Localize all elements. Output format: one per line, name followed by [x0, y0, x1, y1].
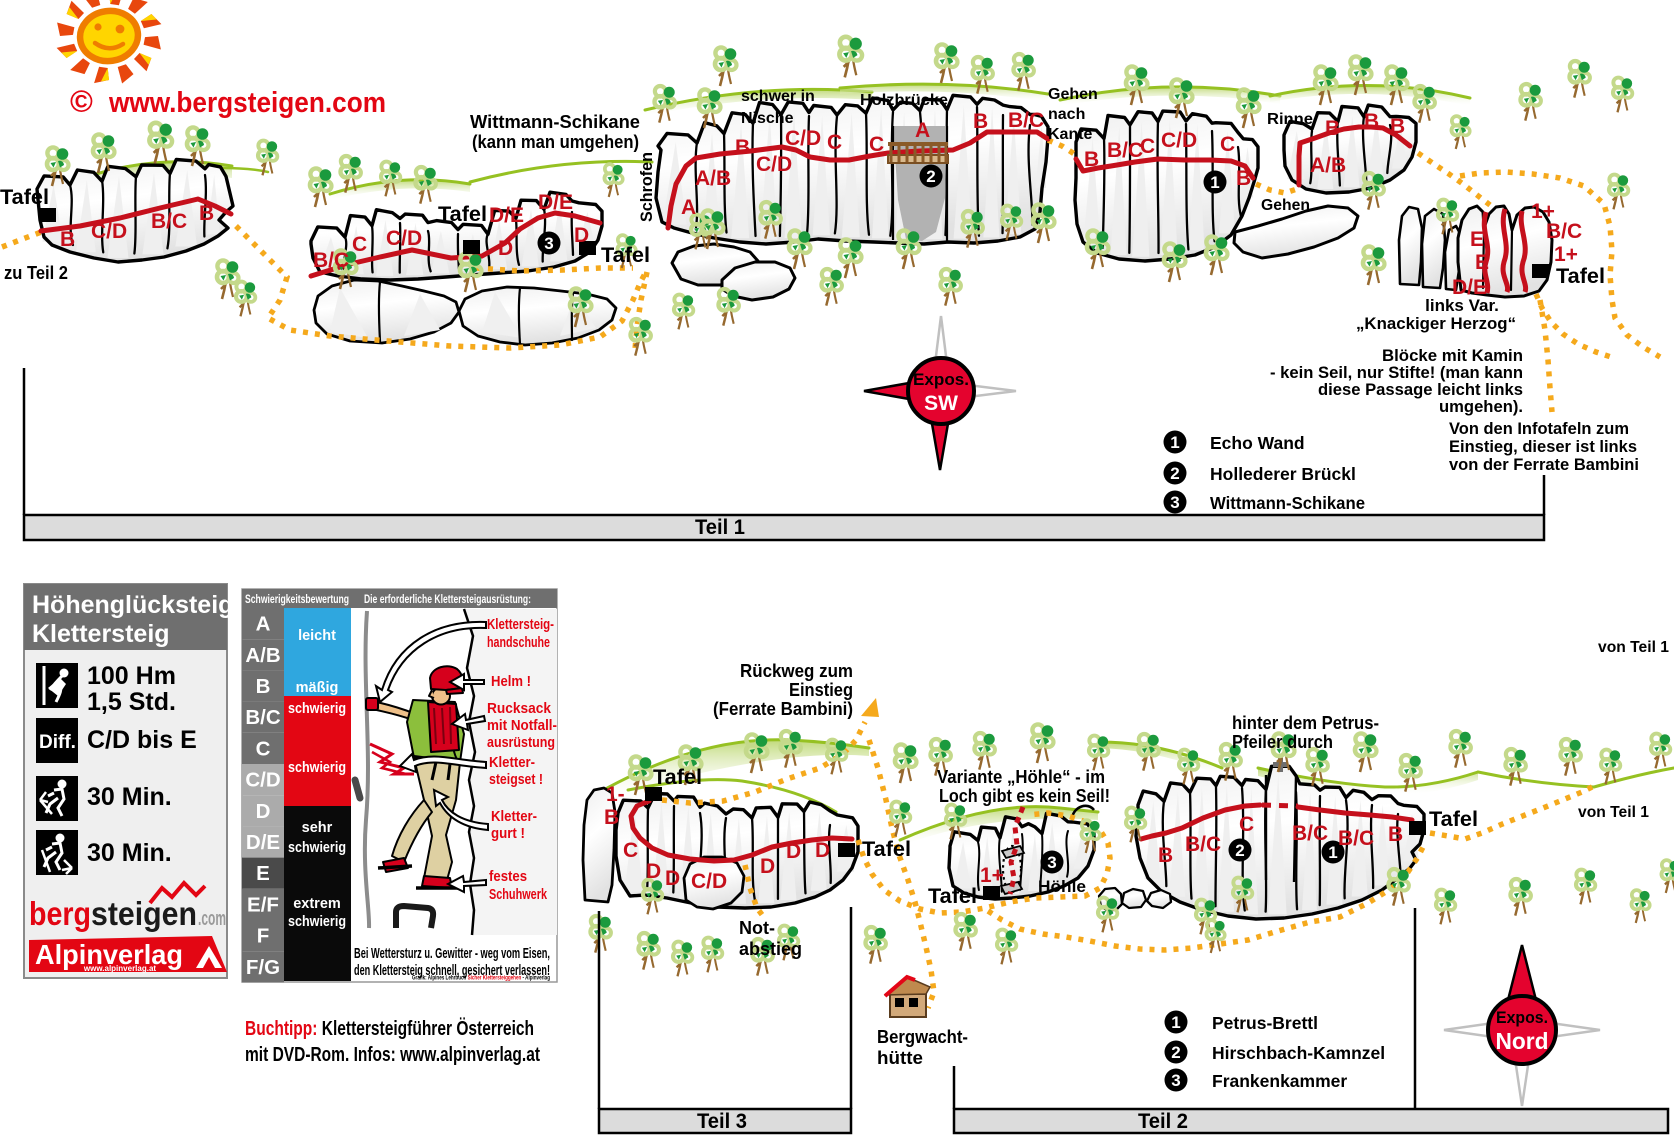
- svg-text:Tafel: Tafel: [438, 203, 487, 226]
- svg-text:Tafel: Tafel: [653, 766, 702, 789]
- svg-text:von Teil 1: von Teil 1: [1578, 804, 1649, 821]
- svg-text:Schrofen: Schrofen: [637, 152, 656, 222]
- svg-text:3: 3: [1171, 1071, 1180, 1090]
- svg-text:1+: 1+: [1554, 243, 1578, 266]
- svg-text:D: D: [786, 840, 801, 863]
- svg-text:B: B: [256, 675, 271, 698]
- svg-text:C: C: [352, 233, 367, 256]
- svg-text:www.alpinverlag.at: www.alpinverlag.at: [83, 964, 157, 973]
- svg-text:A/B: A/B: [1310, 154, 1346, 177]
- svg-text:A: A: [256, 613, 271, 636]
- svg-text:von Teil 1: von Teil 1: [1598, 639, 1669, 656]
- svg-text:B: B: [604, 806, 619, 829]
- svg-text:B: B: [1388, 823, 1403, 846]
- svg-text:steigen: steigen: [91, 895, 197, 932]
- svg-text:B/C: B/C: [1546, 220, 1582, 243]
- svg-text:nach: nach: [1048, 106, 1085, 123]
- svg-text:mit Notfall-: mit Notfall-: [487, 717, 557, 734]
- svg-text:Rucksack: Rucksack: [487, 700, 552, 717]
- svg-text:Kante: Kante: [1048, 126, 1093, 143]
- svg-text:Tafel: Tafel: [601, 244, 650, 267]
- svg-text:(Ferrate Bambini): (Ferrate Bambini): [713, 699, 853, 719]
- svg-text:B: B: [1084, 148, 1099, 171]
- svg-text:B: B: [1325, 117, 1340, 140]
- svg-text:2: 2: [1170, 464, 1179, 483]
- svg-text:1+: 1+: [980, 864, 1004, 887]
- svg-text:F: F: [257, 925, 270, 948]
- svg-text:umgehen).: umgehen).: [1439, 397, 1523, 416]
- svg-text:1: 1: [1171, 1013, 1180, 1032]
- svg-text:C/D: C/D: [785, 127, 821, 150]
- svg-text:E: E: [256, 862, 270, 885]
- svg-text:Schuhwerk: Schuhwerk: [489, 886, 547, 903]
- svg-text:D: D: [498, 237, 513, 260]
- svg-text:steigset !: steigset !: [489, 771, 543, 788]
- svg-text:Variante „Höhle“ - im: Variante „Höhle“ - im: [937, 767, 1105, 787]
- svg-text:Pfeiler durch: Pfeiler durch: [1232, 732, 1333, 752]
- svg-text:B/C: B/C: [151, 210, 187, 233]
- svg-text:Bei Wettersturz u. Gewitter -: Bei Wettersturz u. Gewitter - weg vom Ei…: [354, 945, 550, 962]
- svg-text:Wittmann-Schikane: Wittmann-Schikane: [470, 112, 640, 132]
- svg-text:mäßig: mäßig: [296, 680, 339, 696]
- svg-text:100 Hm: 100 Hm: [87, 662, 176, 690]
- svg-text:1: 1: [1328, 843, 1337, 862]
- svg-text:F/G: F/G: [246, 956, 280, 979]
- svg-text:Nord: Nord: [1496, 1028, 1549, 1054]
- svg-text:schwer in: schwer in: [741, 88, 815, 105]
- svg-text:Teil 3: Teil 3: [697, 1110, 747, 1133]
- svg-text:D/E: D/E: [489, 204, 524, 227]
- svg-text:1,5 Std.: 1,5 Std.: [87, 688, 176, 716]
- svg-text:Holzbrücke: Holzbrücke: [860, 92, 948, 109]
- svg-text:Buchtipp: Klettersteigführer Ö: Buchtipp: Klettersteigführer Österreich: [245, 1017, 534, 1040]
- svg-text:C/D: C/D: [245, 769, 280, 792]
- svg-text:B/C: B/C: [1292, 822, 1328, 845]
- svg-text:A: A: [681, 196, 696, 219]
- svg-text:sehr: sehr: [302, 820, 333, 836]
- svg-text:C: C: [1239, 813, 1254, 836]
- svg-text:Not-: Not-: [739, 918, 775, 938]
- svg-text:D: D: [665, 867, 680, 890]
- svg-text:3: 3: [1170, 493, 1179, 512]
- svg-text:D: D: [760, 855, 775, 878]
- svg-text:Gehen: Gehen: [1261, 197, 1310, 214]
- svg-text:Tafel: Tafel: [0, 186, 49, 209]
- svg-text:Klettersteig-: Klettersteig-: [487, 616, 554, 633]
- svg-text:B/C: B/C: [1185, 833, 1221, 856]
- svg-text:Kletter-: Kletter-: [491, 808, 537, 825]
- svg-text:1: 1: [1170, 433, 1179, 452]
- svg-text:Teil 2: Teil 2: [1138, 1110, 1188, 1133]
- svg-text:Die erforderliche Klettersteig: Die erforderliche Klettersteigausrüstung…: [364, 592, 531, 606]
- svg-text:2: 2: [1235, 841, 1244, 860]
- svg-text:B: B: [1364, 110, 1379, 133]
- svg-text:2: 2: [1171, 1043, 1180, 1062]
- svg-text:Diff.: Diff.: [39, 732, 76, 753]
- svg-text:Tafel: Tafel: [1556, 265, 1605, 288]
- svg-text:gurt !: gurt !: [491, 825, 525, 842]
- svg-text:hütte: hütte: [877, 1048, 923, 1068]
- svg-text:B: B: [199, 202, 214, 225]
- svg-text:leicht: leicht: [298, 628, 336, 644]
- svg-text:Nische: Nische: [741, 110, 794, 127]
- svg-text:Teil 1: Teil 1: [695, 516, 745, 539]
- svg-text:ausrüstung: ausrüstung: [487, 734, 555, 751]
- svg-text:C/D: C/D: [756, 153, 792, 176]
- svg-text:Hollederer Brückl: Hollederer Brückl: [1210, 464, 1356, 484]
- svg-text:www.bergsteigen.com: www.bergsteigen.com: [108, 87, 386, 119]
- svg-text:C/D: C/D: [386, 227, 422, 250]
- svg-text:Rückweg zum: Rückweg zum: [740, 661, 853, 681]
- svg-text:C: C: [256, 737, 271, 760]
- svg-text:Bergwacht-: Bergwacht-: [877, 1027, 968, 1047]
- svg-text:D: D: [815, 839, 830, 862]
- svg-text:handschuhe: handschuhe: [487, 634, 550, 651]
- svg-text:B/C: B/C: [1008, 109, 1044, 132]
- svg-text:Klettersteig: Klettersteig: [32, 620, 170, 648]
- svg-text:Frankenkammer: Frankenkammer: [1212, 1071, 1347, 1091]
- svg-text:30 Min.: 30 Min.: [87, 783, 172, 811]
- svg-text:SW: SW: [924, 392, 958, 415]
- svg-text:A: A: [915, 119, 930, 142]
- svg-text:D/E: D/E: [246, 831, 280, 854]
- svg-text:C/D: C/D: [91, 220, 127, 243]
- svg-text:B: B: [1158, 844, 1173, 867]
- svg-text:Von den Infotafeln zum: Von den Infotafeln zum: [1449, 419, 1629, 438]
- svg-text:Grafik: Alpines Lehrbuch Siche: Grafik: Alpines Lehrbuch Sicher Kletters…: [412, 975, 550, 982]
- svg-text:links Var.: links Var.: [1425, 296, 1499, 315]
- svg-text:Höhle: Höhle: [1038, 877, 1086, 896]
- svg-text:C: C: [827, 131, 842, 154]
- svg-text:Wittmann-Schikane: Wittmann-Schikane: [1210, 493, 1365, 513]
- svg-text:D: D: [574, 224, 589, 247]
- svg-text:schwierig: schwierig: [288, 840, 346, 856]
- svg-text:B: B: [973, 110, 988, 133]
- svg-text:C: C: [623, 839, 638, 862]
- svg-text:B/C: B/C: [313, 249, 349, 272]
- svg-text:B: B: [1236, 167, 1251, 190]
- svg-text:mit DVD-Rom. Infos: www.alpinv: mit DVD-Rom. Infos: www.alpinverlag.at: [245, 1044, 540, 1066]
- svg-text:Tafel: Tafel: [928, 885, 977, 908]
- svg-text:A/B: A/B: [695, 167, 731, 190]
- svg-text:2: 2: [926, 167, 935, 186]
- svg-text:„Knackiger Herzog“: „Knackiger Herzog“: [1356, 314, 1516, 333]
- svg-text:Einstieg: Einstieg: [789, 680, 853, 700]
- svg-text:Helm !: Helm !: [491, 673, 531, 690]
- svg-text:D/E: D/E: [538, 191, 573, 214]
- svg-text:Rinne: Rinne: [1267, 111, 1313, 128]
- svg-text:Loch gibt es kein Seil!: Loch gibt es kein Seil!: [939, 786, 1110, 806]
- svg-text:abstieg: abstieg: [739, 939, 802, 959]
- svg-text:B/C: B/C: [245, 706, 281, 729]
- svg-text:1-: 1-: [606, 783, 625, 806]
- svg-text:B/C: B/C: [1338, 827, 1374, 850]
- svg-text:C/D: C/D: [691, 870, 727, 893]
- svg-text:.com: .com: [198, 908, 226, 930]
- svg-text:Echo Wand: Echo Wand: [1210, 433, 1305, 453]
- svg-text:zu Teil 2: zu Teil 2: [4, 263, 68, 283]
- svg-text:(kann man umgehen): (kann man umgehen): [472, 132, 639, 152]
- svg-text:A/B: A/B: [245, 644, 280, 667]
- svg-text:Kletter-: Kletter-: [489, 754, 535, 771]
- svg-text:C: C: [1140, 135, 1155, 158]
- svg-text:B: B: [735, 136, 750, 159]
- svg-text:festes: festes: [489, 868, 527, 885]
- svg-text:E: E: [1470, 228, 1484, 251]
- svg-text:berg: berg: [29, 895, 91, 932]
- svg-text:Gehen: Gehen: [1048, 86, 1098, 103]
- svg-text:Schwierigkeitsbewertung: Schwierigkeitsbewertung: [245, 592, 349, 606]
- svg-text:E: E: [1475, 251, 1489, 274]
- svg-text:Hirschbach-Kamnzel: Hirschbach-Kamnzel: [1212, 1043, 1385, 1063]
- svg-text:3: 3: [544, 234, 553, 253]
- svg-text:3: 3: [1047, 853, 1056, 872]
- svg-text:Expos.: Expos.: [913, 370, 969, 389]
- svg-text:C: C: [1220, 133, 1235, 156]
- svg-text:schwierig: schwierig: [288, 914, 346, 930]
- svg-text:B: B: [60, 228, 75, 251]
- svg-text:30 Min.: 30 Min.: [87, 839, 172, 867]
- svg-text:Expos.: Expos.: [1496, 1008, 1548, 1027]
- svg-text:1: 1: [1210, 173, 1219, 192]
- svg-text:Höhenglücksteig: Höhenglücksteig: [32, 591, 233, 619]
- svg-text:D: D: [256, 800, 271, 823]
- svg-text:E/F: E/F: [247, 893, 279, 916]
- svg-text:Tafel: Tafel: [1429, 808, 1478, 831]
- svg-text:D: D: [646, 860, 661, 883]
- svg-text:schwierig: schwierig: [288, 760, 346, 776]
- svg-text:C/D bis E: C/D bis E: [87, 726, 197, 754]
- svg-text:schwierig: schwierig: [288, 701, 346, 717]
- svg-text:extrem: extrem: [293, 896, 341, 912]
- svg-text:B/C: B/C: [1107, 139, 1143, 162]
- svg-text:Einstieg, dieser ist links: Einstieg, dieser ist links: [1449, 437, 1637, 456]
- svg-text:Petrus-Brettl: Petrus-Brettl: [1212, 1013, 1318, 1033]
- svg-text:©: ©: [70, 84, 93, 119]
- svg-text:von der Ferrate Bambini: von der Ferrate Bambini: [1449, 455, 1639, 474]
- svg-text:C: C: [869, 133, 884, 156]
- svg-text:C/D: C/D: [1161, 129, 1197, 152]
- svg-text:B: B: [1390, 115, 1405, 138]
- svg-text:hinter dem Petrus-: hinter dem Petrus-: [1232, 713, 1379, 733]
- svg-text:Tafel: Tafel: [862, 838, 911, 861]
